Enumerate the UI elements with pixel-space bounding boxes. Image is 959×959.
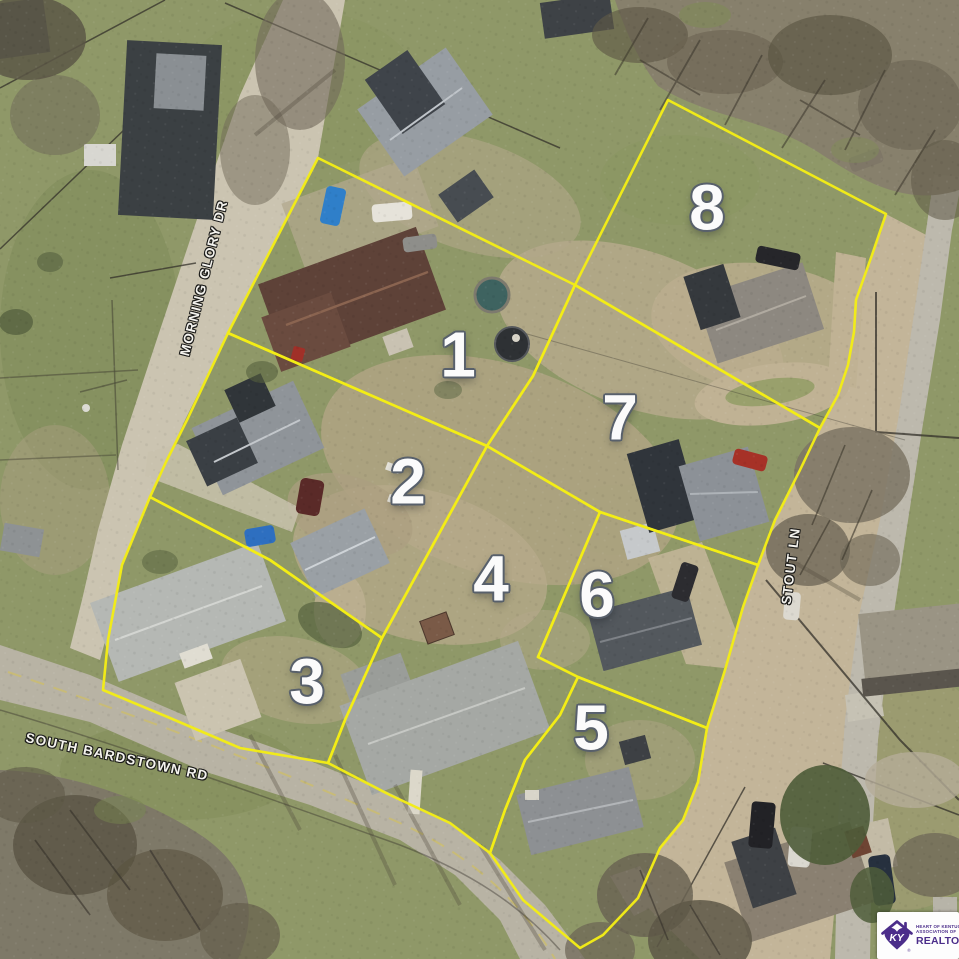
- ky-monogram: KY: [889, 933, 904, 944]
- parcel-number-4: 4: [473, 546, 509, 610]
- parcel-number-6: 6: [579, 562, 615, 626]
- realtors-wordmark: REALTORS: [916, 935, 959, 947]
- parcel-number-7: 7: [602, 385, 638, 449]
- parcel-number-5: 5: [573, 695, 609, 759]
- photo-grain: [0, 0, 959, 959]
- parcel-number-8: 8: [689, 175, 725, 239]
- parcel-number-2: 2: [390, 449, 426, 513]
- realtor-logo-text: HEART OF KENTUCKY ASSOCIATION OF REALTOR…: [916, 924, 959, 948]
- aerial-photo-background: [0, 0, 959, 959]
- parcel-number-1: 1: [440, 322, 476, 386]
- aerial-parcel-map: 1 2 3 4 5 6 7 8 MORNING GLORY DR SOUTH B…: [0, 0, 959, 959]
- parcel-number-3: 3: [289, 649, 325, 713]
- logo-org-line3: REALTORS®: [916, 935, 959, 947]
- ky-heart-roof-icon: KY ®: [880, 917, 914, 955]
- svg-text:®: ®: [907, 948, 911, 953]
- realtor-logo: KY ® HEART OF KENTUCKY ASSOCIATION OF RE…: [877, 912, 959, 959]
